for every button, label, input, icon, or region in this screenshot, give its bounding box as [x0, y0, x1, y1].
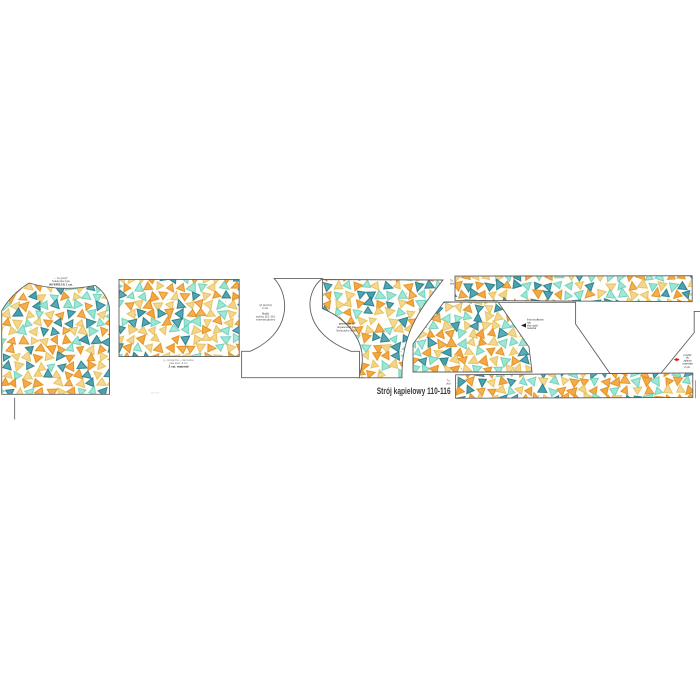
svg-text:2 szt.: 2 szt. — [262, 306, 269, 310]
svg-text:Strój kąpielowy 110-116: Strój kąpielowy 110-116 — [377, 386, 451, 396]
svg-text:materiał główny: materiał główny — [256, 317, 276, 321]
svg-text:złóż: złóż — [446, 382, 451, 386]
svg-text:· p r i n t ·: · p r i n t · — [150, 391, 161, 394]
svg-text:WYKRÓJ B 1 szt.: WYKRÓJ B 1 szt. — [49, 282, 73, 287]
svg-text:złóż: złóż — [450, 282, 455, 286]
svg-text:Serduszko w dół: Serduszko w dół — [336, 329, 357, 333]
svg-text:2 szt.: 2 szt. — [684, 365, 690, 369]
svg-text:2 szt. materiał: 2 szt. materiał — [169, 364, 189, 368]
svg-text:materiał: materiał — [527, 326, 537, 330]
